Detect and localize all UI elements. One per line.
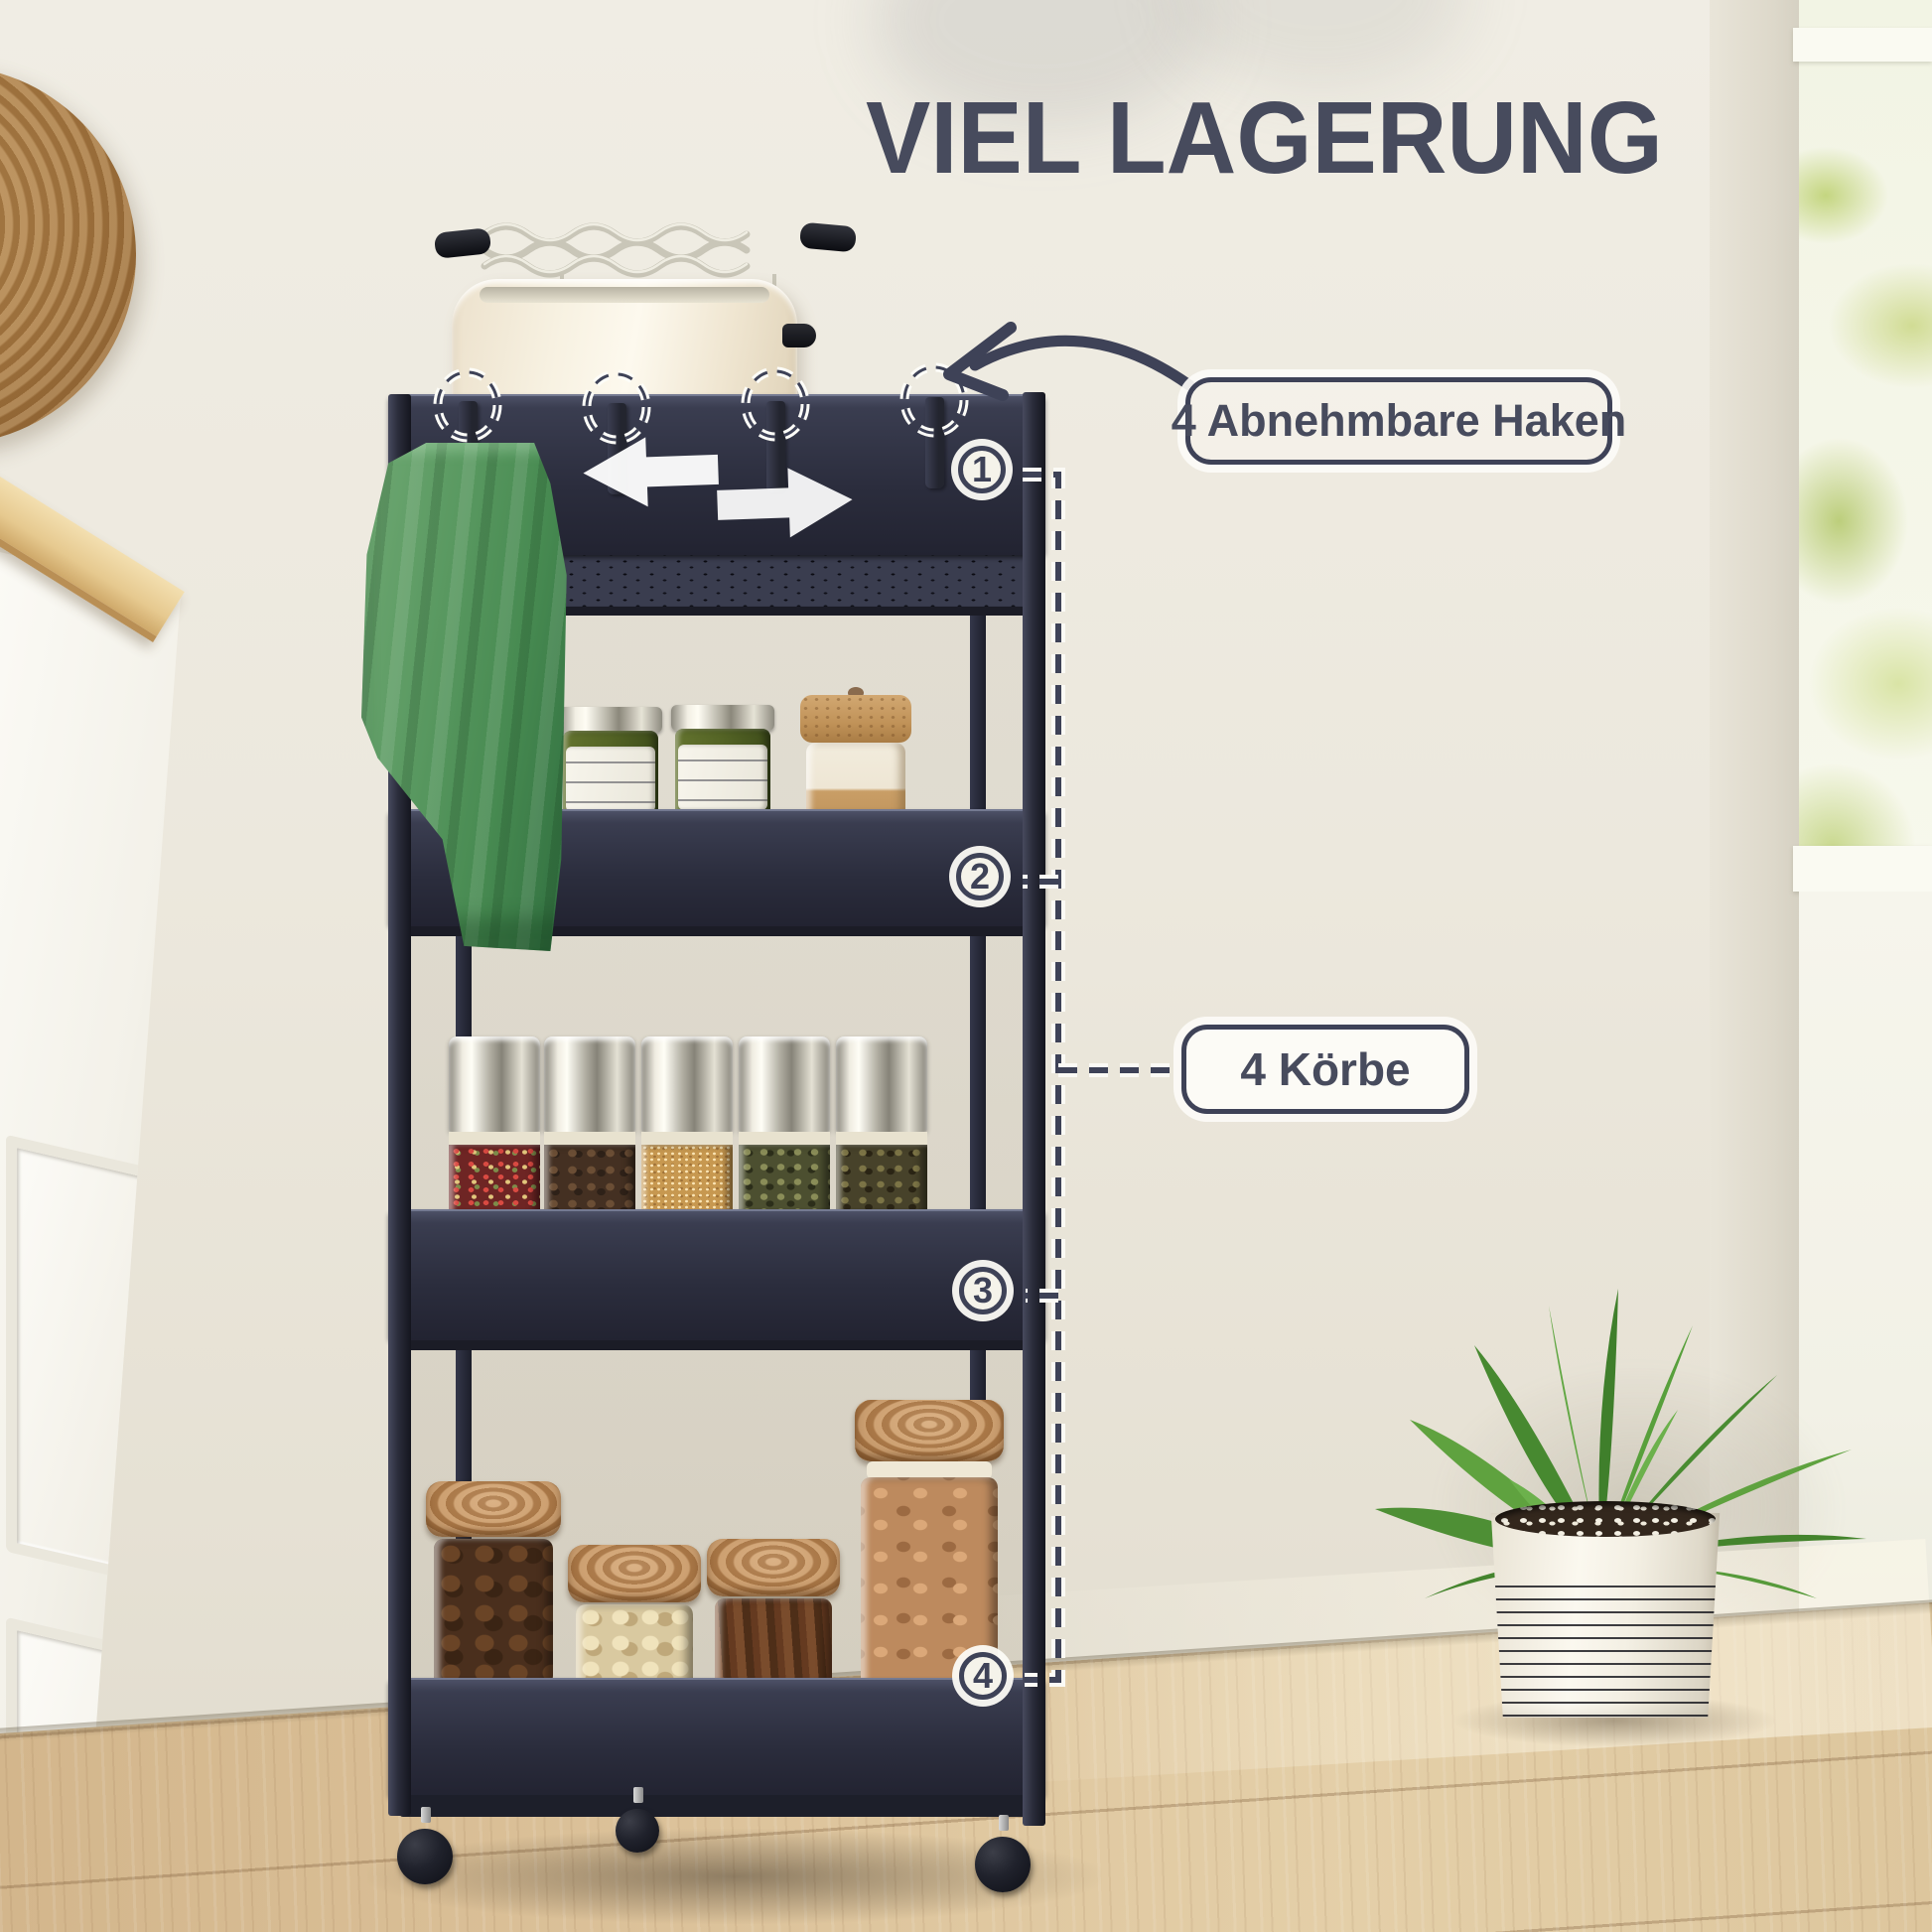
marker-4: 4: [959, 1652, 1007, 1700]
removable-hook: [925, 397, 944, 488]
spice-jar-chrome-cap: [836, 1036, 927, 1132]
toaster-lever: [782, 324, 816, 347]
marker-1-number: 1: [972, 449, 992, 490]
round-cutting-board: [0, 66, 136, 445]
cabinet-door-panel: [6, 1135, 155, 1587]
jar-chrome-lid: [671, 705, 774, 731]
spice-jar-chrome-cap: [641, 1036, 733, 1132]
curved-arrow-icon: [949, 328, 1189, 395]
marker-4-number: 4: [973, 1655, 993, 1697]
cart-basket-3-front: [388, 1209, 1045, 1340]
caster-wheel: [616, 1799, 661, 1857]
cart-base-bar: [399, 1795, 1040, 1817]
jar-chrome-lid: [559, 707, 662, 733]
spice-jar-band: [449, 1132, 540, 1145]
callout-hooks: 4 Abnehmbare Haken: [1185, 377, 1612, 465]
wood-lid: [568, 1545, 701, 1602]
wood-lid: [707, 1539, 840, 1596]
spice-jar-band: [544, 1132, 635, 1145]
marker-1: 1: [958, 446, 1006, 493]
caster-wheel-tire: [616, 1809, 659, 1853]
cart-front-post: [1023, 392, 1045, 1826]
almond-jar: [855, 1400, 1004, 1690]
cork-jar-lid: [800, 695, 911, 743]
toaster-slot: [480, 287, 769, 303]
rack-handle: [799, 222, 857, 253]
caster-stem: [633, 1787, 643, 1803]
hazelnut-jar: [568, 1545, 701, 1690]
marker-3-number: 3: [973, 1270, 993, 1311]
white-cabinet: [0, 552, 185, 1743]
cinnamon-stick-jar: [707, 1539, 840, 1690]
pot-soil-pebbles: [1495, 1501, 1716, 1537]
spice-jar-band: [739, 1132, 830, 1145]
wall-blur-shadow: [1172, 0, 1469, 89]
callout-baskets: 4 Körbe: [1181, 1025, 1469, 1114]
jar-contents: [715, 1598, 832, 1688]
wood-lid: [426, 1481, 561, 1537]
spice-jar-chrome-cap: [449, 1036, 540, 1132]
spice-jar-band: [836, 1132, 927, 1145]
caster-wheel-tire: [975, 1837, 1031, 1892]
pot-stripes: [1486, 1575, 1725, 1718]
spice-jar-chrome-cap: [739, 1036, 830, 1132]
removable-hook: [766, 401, 785, 492]
product-marketing-image: VIEL LAGERUNG 4 Abnehmbare Haken 4 Körbe…: [0, 0, 1932, 1932]
window-muntin-bar: [1793, 28, 1932, 62]
jar-contents: [576, 1604, 693, 1688]
window-muntin-bar: [1793, 846, 1932, 892]
jar-contents: [434, 1539, 553, 1686]
callout-baskets-label: 4 Körbe: [1240, 1042, 1410, 1096]
cart-basket-4-front: [388, 1678, 1045, 1797]
marker-2: 2: [956, 853, 1004, 900]
chocolate-nut-jar: [426, 1481, 561, 1690]
caster-wheel: [397, 1819, 455, 1888]
cart-basket-3-bottom: [394, 1340, 1039, 1350]
wood-lid: [855, 1400, 1004, 1461]
pesto-jar-label: [566, 747, 655, 812]
plant-pot: [1486, 1513, 1725, 1718]
page-title: VIEL LAGERUNG: [866, 79, 1663, 197]
spice-jar-chrome-cap: [544, 1036, 635, 1132]
marker-3: 3: [959, 1267, 1007, 1314]
caster-wheel-tire: [397, 1829, 453, 1884]
caster-stem: [999, 1815, 1009, 1831]
caster-wheel: [975, 1827, 1033, 1896]
marker-2-number: 2: [970, 856, 990, 897]
pesto-jar-label: [678, 745, 767, 810]
removable-hook: [608, 403, 626, 494]
callout-hooks-label: 4 Abnehmbare Haken: [1172, 395, 1626, 447]
caster-stem: [421, 1807, 431, 1823]
spice-jar-band: [641, 1132, 733, 1145]
marker-connector-lines: [1023, 475, 1177, 1680]
